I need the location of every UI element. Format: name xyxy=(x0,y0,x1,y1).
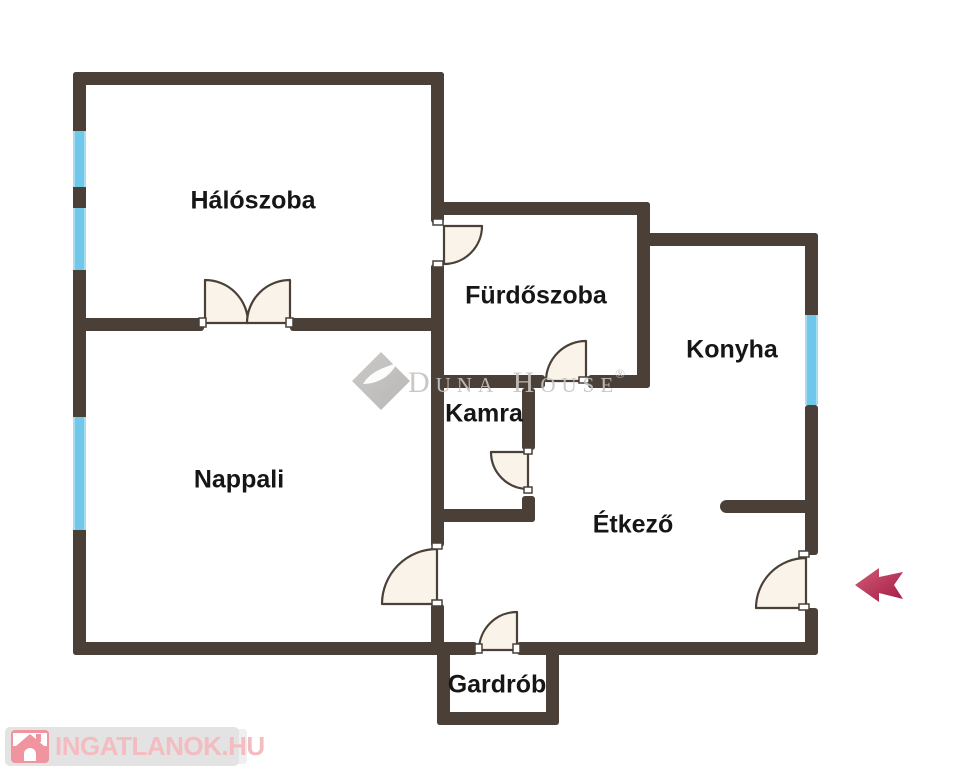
room-label-living-room: Nappali xyxy=(194,466,284,495)
ingatlanok-logo-text: INGATLANOK.HU xyxy=(55,731,265,762)
house-icon xyxy=(11,730,49,763)
watermark-brand-text: Duna House xyxy=(408,366,619,399)
room-label-dining-room: Étkező xyxy=(593,511,674,540)
double-door-bedroom-living-right-leaf xyxy=(247,280,290,323)
room-label-kitchen: Konyha xyxy=(686,336,778,365)
door-wardrobe xyxy=(479,612,517,650)
door-entrance xyxy=(756,558,806,608)
room-label-pantry: Kamra xyxy=(445,400,523,429)
floor-plan: Duna House® Hálószoba Fürdőszoba Konyha … xyxy=(0,0,956,768)
ingatlanok-logo: INGATLANOK.HU xyxy=(5,727,239,766)
room-label-wardrobe: Gardrób xyxy=(448,671,547,700)
door-bathroom-entry xyxy=(444,226,482,264)
registered-mark: ® xyxy=(615,366,625,381)
watermark-brand: Duna House® xyxy=(408,366,625,400)
door-living-hall xyxy=(382,549,437,604)
room-label-bathroom: Fürdőszoba xyxy=(465,282,607,311)
entrance-left-arrow-icon xyxy=(855,568,903,602)
watermark-diamond-logo-icon xyxy=(352,352,410,410)
double-door-bedroom-living-left-leaf xyxy=(205,280,248,323)
door-pantry xyxy=(491,452,528,489)
room-label-bedroom: Hálószoba xyxy=(190,187,315,216)
